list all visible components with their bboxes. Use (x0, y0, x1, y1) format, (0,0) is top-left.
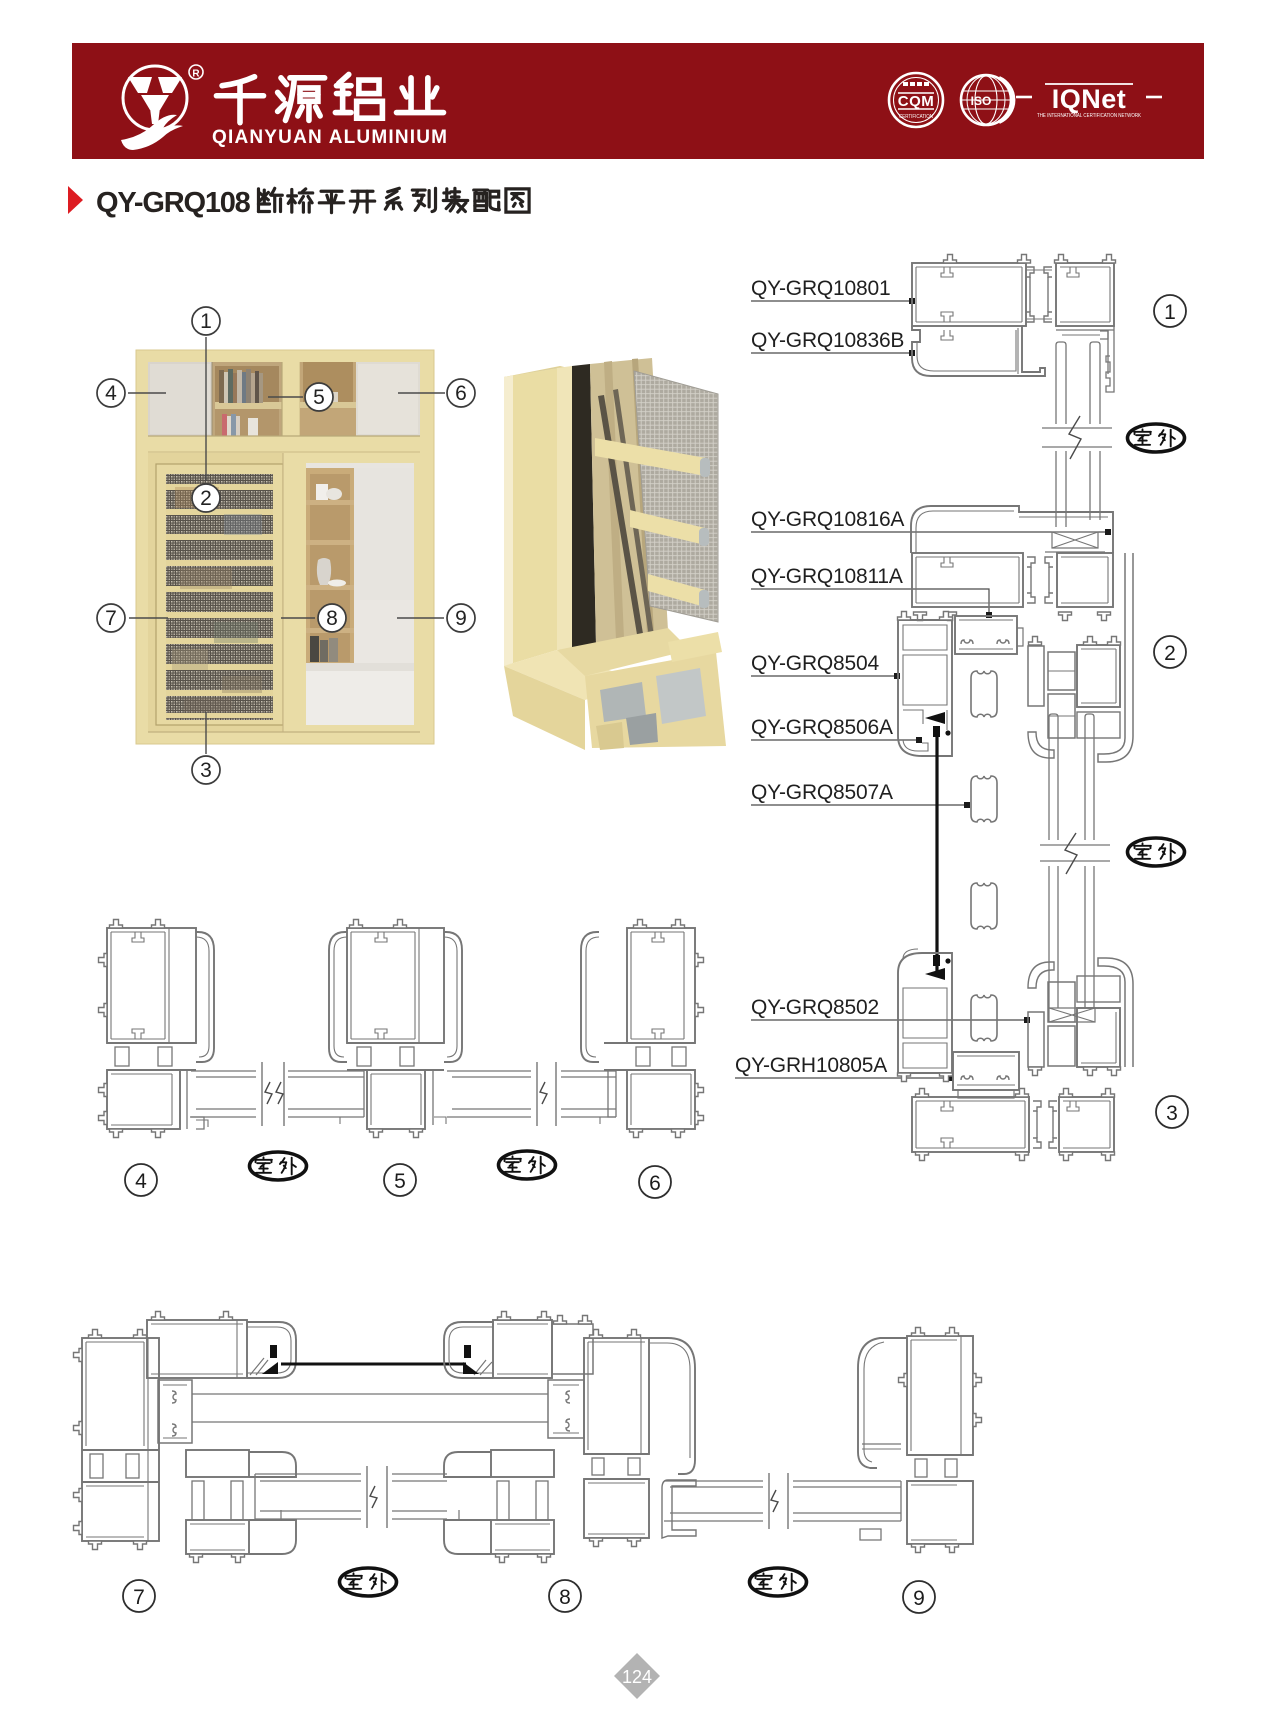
svg-text:THE INTERNATIONAL CERTIFICATIO: THE INTERNATIONAL CERTIFICATION NETWORK (1037, 113, 1142, 119)
svg-text:QY-GRH10805A: QY-GRH10805A (735, 1054, 887, 1077)
svg-text:6: 6 (455, 382, 467, 405)
svg-text:QY-GRQ108: QY-GRQ108 (96, 187, 251, 219)
svg-text:R: R (192, 69, 200, 80)
svg-text:QY-GRQ8507A: QY-GRQ8507A (751, 781, 893, 804)
svg-text:124: 124 (622, 1667, 652, 1687)
svg-text:IQNet: IQNet (1052, 84, 1127, 114)
svg-text:QY-GRQ8504: QY-GRQ8504 (751, 652, 879, 675)
svg-text:9: 9 (913, 1587, 925, 1610)
svg-text:QIANYUAN ALUMINIUM: QIANYUAN ALUMINIUM (212, 127, 448, 148)
svg-text:QY-GRQ10816A: QY-GRQ10816A (751, 508, 904, 531)
svg-text:3: 3 (200, 759, 212, 782)
svg-text:7: 7 (105, 607, 117, 630)
svg-text:QY-GRQ8502: QY-GRQ8502 (751, 996, 879, 1019)
svg-text:9: 9 (455, 607, 467, 630)
svg-text:1: 1 (1164, 301, 1176, 324)
svg-text:1: 1 (200, 310, 212, 333)
svg-text:2: 2 (1164, 642, 1176, 665)
svg-text:QY-GRQ8506A: QY-GRQ8506A (751, 716, 893, 739)
svg-text:5: 5 (313, 386, 325, 409)
svg-text:CQM: CQM (898, 93, 935, 110)
svg-text:CERTIFICATION: CERTIFICATION (899, 114, 933, 120)
svg-text:6: 6 (649, 1172, 661, 1195)
svg-text:2: 2 (200, 487, 212, 510)
svg-text:4: 4 (105, 382, 117, 405)
svg-text:8: 8 (326, 607, 338, 630)
svg-text:8: 8 (559, 1586, 571, 1609)
svg-text:5: 5 (394, 1170, 406, 1193)
svg-text:7: 7 (133, 1586, 145, 1609)
svg-text:4: 4 (135, 1170, 147, 1193)
svg-text:3: 3 (1166, 1102, 1178, 1125)
svg-text:QY-GRQ10801: QY-GRQ10801 (751, 277, 890, 300)
svg-text:QY-GRQ10811A: QY-GRQ10811A (751, 565, 903, 588)
svg-text:QY-GRQ10836B: QY-GRQ10836B (751, 329, 904, 352)
svg-text:ISO: ISO (971, 94, 992, 108)
